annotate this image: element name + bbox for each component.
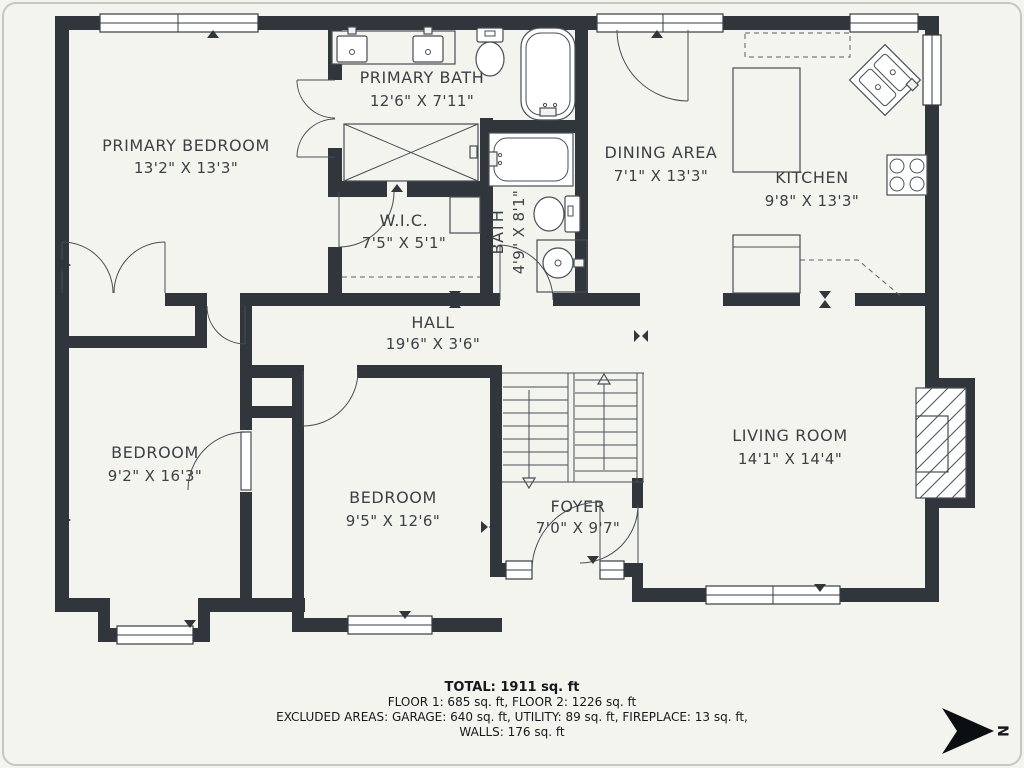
- window: [506, 561, 532, 579]
- window: [850, 14, 918, 32]
- room-label-bedroom-center: BEDROOM: [349, 488, 437, 507]
- window: [100, 14, 258, 32]
- stove-icon: [887, 155, 927, 195]
- room-dims-hall: 19'6" X 3'6": [386, 335, 480, 353]
- room-label-bedroom-left: BEDROOM: [111, 443, 199, 462]
- toilet-icon: [534, 196, 580, 232]
- room-label-dining: DINING AREA: [605, 143, 718, 162]
- room-label-living-room: LIVING ROOM: [732, 426, 847, 445]
- window: [923, 35, 941, 105]
- room-label-wic: W.I.C.: [380, 211, 429, 230]
- room-dims-dining: 7'1" X 13'3": [614, 167, 708, 185]
- north-label: N: [994, 725, 1010, 737]
- floorplan-page: PRIMARY BEDROOM 13'2" X 13'3" PRIMARY BA…: [0, 0, 1024, 768]
- window: [348, 616, 432, 634]
- room-dims-bedroom-left: 9'2" X 16'3": [108, 467, 202, 485]
- room-dims-primary-bedroom: 13'2" X 13'3": [134, 159, 238, 177]
- window: [600, 561, 624, 579]
- room-dims-bedroom-center: 9'5" X 12'6": [346, 512, 440, 530]
- bathtub-icon: [521, 28, 575, 120]
- summary-floors: FLOOR 1: 685 sq. ft, FLOOR 2: 1226 sq. f…: [388, 695, 637, 709]
- room-label-bath: BATH: [488, 210, 507, 255]
- room-label-primary-bedroom: PRIMARY BEDROOM: [102, 136, 270, 155]
- room-label-kitchen: KITCHEN: [775, 168, 849, 187]
- summary-walls: WALLS: 176 sq. ft: [459, 725, 564, 739]
- room-label-foyer: FOYER: [551, 497, 606, 516]
- room-dims-living-room: 14'1" X 14'4": [738, 450, 842, 468]
- room-dims-foyer: 7'0" X 9'7": [536, 519, 620, 537]
- double-vanity-sink: [332, 27, 455, 64]
- floorplan-drawing: PRIMARY BEDROOM 13'2" X 13'3" PRIMARY BA…: [0, 0, 1024, 768]
- room-dims-primary-bath: 12'6" X 7'11": [370, 92, 474, 110]
- page-border: [3, 3, 1021, 765]
- window: [597, 14, 723, 32]
- room-dims-kitchen: 9'8" X 13'3": [765, 192, 859, 210]
- window: [117, 626, 193, 644]
- summary-total: TOTAL: 1911 sq. ft: [445, 680, 580, 695]
- room-label-primary-bath: PRIMARY BATH: [360, 68, 485, 87]
- bathtub-icon: [489, 133, 573, 186]
- room-label-hall: HALL: [411, 313, 454, 332]
- room-dims-bath: 4'9" X 8'1": [510, 190, 528, 274]
- fireplace: [916, 388, 966, 498]
- room-dims-wic: 7'5" X 5'1": [362, 234, 446, 252]
- summary-excluded: EXCLUDED AREAS: GARAGE: 640 sq. ft, UTIL…: [276, 710, 748, 724]
